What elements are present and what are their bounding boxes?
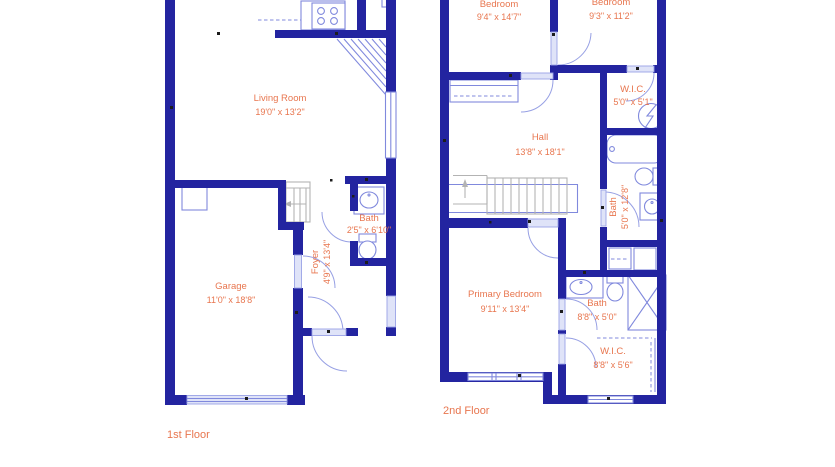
- lower-wic-door-panel: [559, 334, 565, 364]
- vanity-sink-icon-lower-bath: [566, 276, 603, 298]
- kitchen-counter: [258, 0, 391, 30]
- garage-dims: 11'0" x 18'8": [207, 295, 256, 305]
- hall-label: Hall: [532, 132, 548, 143]
- stair-void-hatch: [337, 39, 386, 95]
- wic-top-dims: 5'0" x 5'1": [613, 97, 652, 107]
- wic-top-label: W.I.C.: [620, 84, 646, 95]
- bedroom-closet: [450, 80, 518, 102]
- bath-dims: 2'5" x 6'10": [347, 225, 391, 235]
- garage-foyer-door-panel: [295, 255, 302, 288]
- bedroom-left-label: Bedroom: [480, 0, 519, 10]
- living-room-dims: 19'0" x 13'2": [255, 107, 304, 117]
- foyer-label: Foyer: [310, 250, 321, 274]
- first-floor-title: 1st Floor: [167, 429, 210, 441]
- wic-window: [588, 396, 633, 403]
- entry-door-arc-inside: [308, 297, 343, 332]
- primary-bedroom-dims: 9'11" x 13'4": [481, 304, 530, 314]
- primary-bedroom-label: Primary Bedroom: [468, 289, 542, 300]
- living-room-label: Living Room: [254, 93, 307, 104]
- hall-dims: 13'8" x 18'1": [515, 147, 564, 157]
- garage-closet: [182, 187, 207, 210]
- bedroom-left-door-arc: [521, 80, 553, 112]
- stair-direction-arrow-2: [462, 179, 468, 198]
- lower-wic-dims: 8'8" x 5'6": [593, 360, 632, 370]
- lower-bath-door-panel: [559, 299, 565, 330]
- bedroom-right-door-arc: [558, 33, 591, 65]
- long-bath-label: Bath: [608, 197, 619, 217]
- long-bath-dims: 5'0" x 12'8": [620, 185, 630, 229]
- first-floor-plan: Living Room 19'0" x 13'2" Garage 11'0" x…: [165, 0, 396, 441]
- right-wall-window: [386, 92, 397, 158]
- linen-cabinets: [609, 248, 656, 270]
- floorplan-drawing: Living Room 19'0" x 13'2" Garage 11'0" x…: [0, 0, 835, 467]
- bedroom-right-label: Bedroom: [592, 0, 631, 8]
- garage-label: Garage: [215, 281, 247, 292]
- bath-sink-icon: [354, 187, 384, 214]
- staircase-first-floor: [284, 182, 310, 222]
- second-floor-plan: Bedroom 9'4" x 14'7" Bedroom 9'3" x 11'2…: [440, 0, 666, 417]
- bedroom-left-door-panel: [521, 73, 553, 79]
- lower-bath-dims: 8'8" x 5'0": [577, 312, 616, 322]
- bath-label: Bath: [359, 213, 379, 224]
- bedroom-left-dims: 9'4" x 14'7": [477, 12, 521, 22]
- primary-bedroom-door-panel: [528, 219, 558, 227]
- lower-bath-label: Bath: [587, 298, 607, 309]
- bathtub-icon: [605, 135, 663, 163]
- wic-top-door-panel: [627, 66, 654, 72]
- side-entry-door-panel: [387, 296, 396, 327]
- floorplan-page: Living Room 19'0" x 13'2" Garage 11'0" x…: [0, 0, 835, 467]
- second-floor-title: 2nd Floor: [443, 405, 490, 417]
- staircase-second-floor: [449, 176, 578, 215]
- stove-icon: [312, 3, 345, 29]
- primary-bedroom-window: [468, 373, 543, 381]
- wall-markers-first-floor: [170, 32, 368, 400]
- bedroom-right-door-panel: [551, 32, 557, 65]
- bedroom-right-dims: 9'3" x 11'2": [589, 11, 633, 21]
- foyer-dims: 4'9" x 13'4": [322, 240, 332, 284]
- garage-door: [187, 396, 287, 405]
- lower-wic-door-arc: [566, 338, 596, 368]
- toilet-icon-lower-bath: [607, 276, 623, 301]
- lower-wic-label: W.I.C.: [600, 346, 626, 357]
- entry-door-arc-outside: [312, 336, 347, 371]
- bath-toilet-icon: [359, 234, 376, 259]
- primary-bedroom-door-arc: [528, 228, 558, 258]
